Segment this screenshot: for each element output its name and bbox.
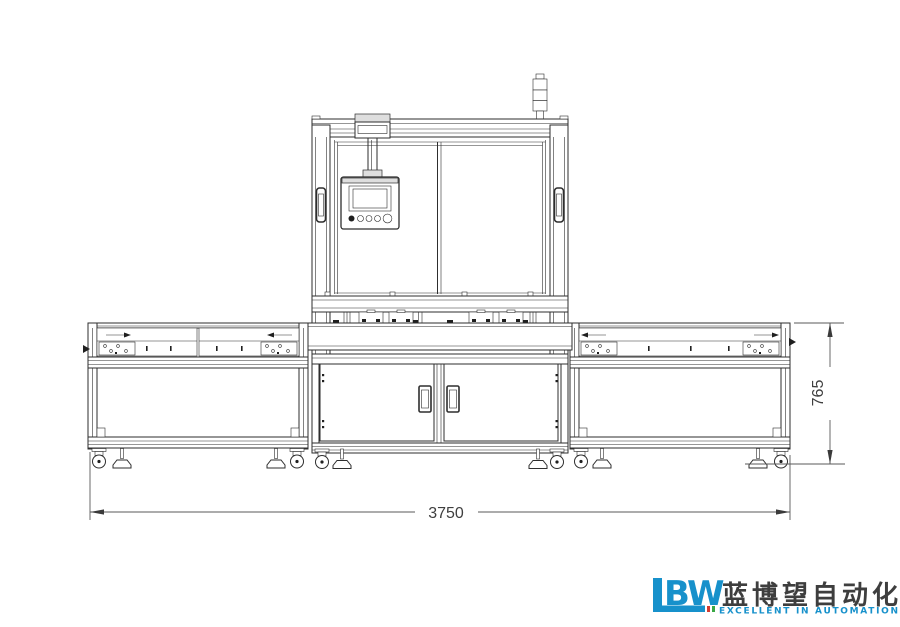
dimension-overall-width: 3750 <box>90 452 790 522</box>
logo-acronym-bw: BW <box>664 574 724 614</box>
table-fascia <box>308 323 572 350</box>
logo-green-tick <box>712 606 715 612</box>
logo-red-tick <box>707 606 710 612</box>
caster-wheel <box>774 449 788 469</box>
caster-wheel <box>574 449 588 469</box>
caster-wheel <box>550 449 564 469</box>
caster-wheel <box>92 449 106 469</box>
right-conveyor-table <box>570 323 796 468</box>
left-conveyor-table <box>83 323 308 468</box>
dimension-height-label: 765 <box>810 380 827 407</box>
dimension-width-label: 3750 <box>428 505 464 522</box>
lower-cabinet <box>312 354 568 453</box>
leveling-foot <box>113 449 131 469</box>
door-handle-right <box>447 386 459 412</box>
hmi-panel <box>341 177 399 229</box>
main-machine-cabinet <box>308 74 572 469</box>
door-handle-left <box>419 386 431 412</box>
caster-wheel <box>315 449 329 469</box>
leveling-foot <box>267 449 285 469</box>
logo: BW 蓝博望自动化 EXCELLENT IN AUTOMATION <box>653 574 900 617</box>
enclosure-bottom-rail <box>312 292 568 312</box>
enclosure-door-handle-left <box>317 188 326 222</box>
signal-tower-light <box>533 74 547 126</box>
end-sensor <box>789 338 796 346</box>
enclosure-frame <box>312 125 568 354</box>
enclosure-door-handle-right <box>555 188 564 222</box>
cabinet-door-right <box>444 364 558 441</box>
logo-tagline: EXCELLENT IN AUTOMATION <box>719 607 900 617</box>
drawing-page: 3750 765 BW 蓝博望自动化 EXCELLENT IN AUTOMATI… <box>0 0 900 627</box>
enclosure-top-rail <box>312 116 568 137</box>
leveling-foot <box>593 449 611 469</box>
leveling-foot <box>749 449 767 469</box>
cabinet-door-left <box>320 364 434 441</box>
caster-wheel <box>290 449 304 469</box>
machine-front-view-drawing: 3750 765 BW 蓝博望自动化 EXCELLENT IN AUTOMATI… <box>0 0 900 627</box>
